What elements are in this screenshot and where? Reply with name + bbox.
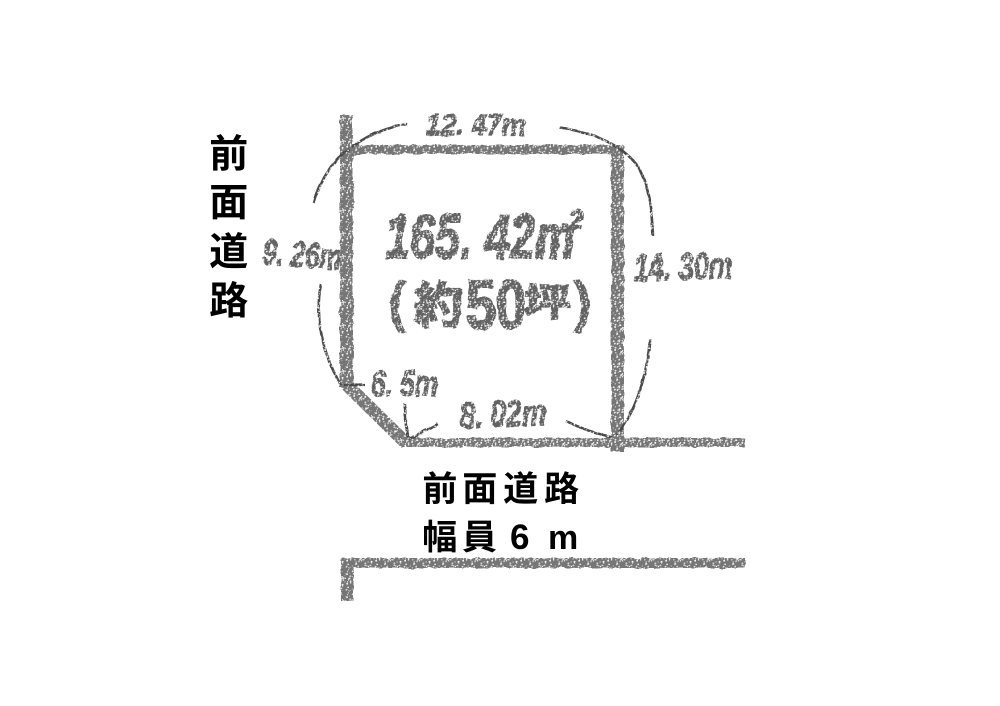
svg-text:6: 6 bbox=[510, 518, 529, 557]
svg-text:m: m bbox=[548, 519, 578, 557]
